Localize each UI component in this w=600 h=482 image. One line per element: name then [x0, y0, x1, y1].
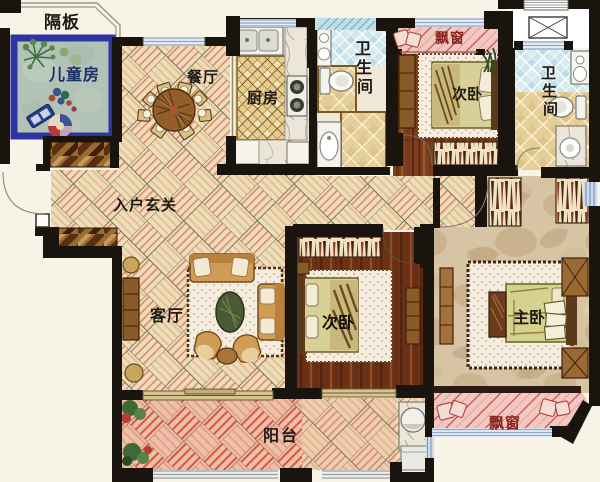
svg-text:生: 生 — [356, 58, 372, 77]
svg-text:卫: 卫 — [541, 65, 556, 82]
svg-text:阳台: 阳台 — [263, 426, 299, 445]
svg-text:厨房: 厨房 — [247, 89, 279, 107]
svg-text:次卧: 次卧 — [322, 313, 354, 332]
svg-text:飘窗: 飘窗 — [489, 414, 521, 432]
svg-text:卫: 卫 — [355, 41, 371, 58]
svg-text:主卧: 主卧 — [513, 308, 545, 327]
svg-text:飘窗: 飘窗 — [435, 30, 465, 46]
svg-text:生: 生 — [542, 82, 557, 100]
svg-text:入户玄关: 入户玄关 — [113, 196, 177, 214]
svg-text:次卧: 次卧 — [452, 85, 482, 103]
svg-text:餐厅: 餐厅 — [187, 68, 219, 86]
svg-text:儿童房: 儿童房 — [48, 65, 100, 84]
svg-text:间: 间 — [543, 100, 558, 118]
svg-text:隔板: 隔板 — [44, 12, 80, 32]
svg-text:间: 间 — [357, 77, 373, 96]
svg-text:客厅: 客厅 — [150, 306, 184, 325]
